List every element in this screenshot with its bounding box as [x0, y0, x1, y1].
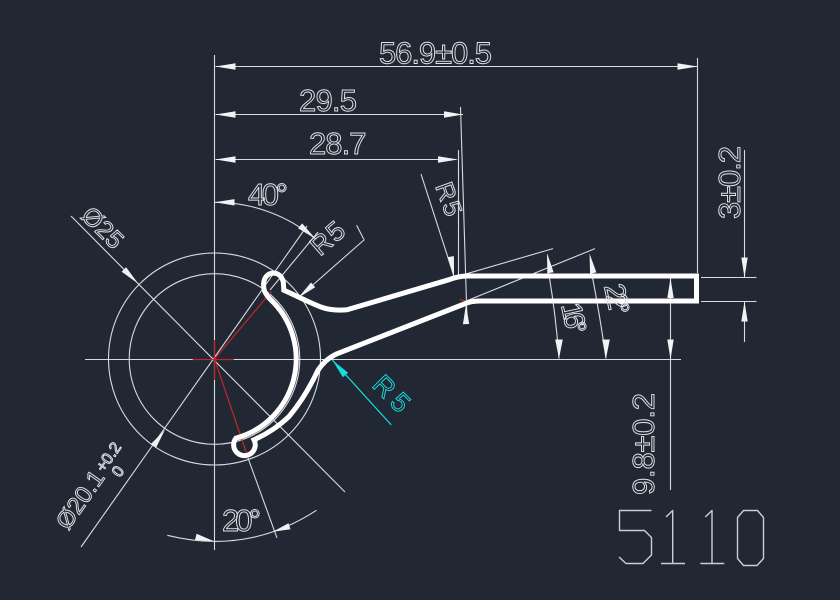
svg-text:20°: 20° — [222, 503, 261, 538]
svg-text:9.8±0.2: 9.8±0.2 — [626, 393, 661, 495]
svg-text:29.5: 29.5 — [299, 83, 357, 118]
svg-text:28.7: 28.7 — [309, 126, 367, 161]
svg-text:40°: 40° — [248, 177, 288, 212]
svg-text:22°: 22° — [597, 281, 635, 318]
svg-text:56.9±0.5: 56.9±0.5 — [379, 36, 492, 71]
svg-text:3±0.2: 3±0.2 — [712, 146, 747, 219]
svg-text:16°: 16° — [554, 300, 592, 337]
